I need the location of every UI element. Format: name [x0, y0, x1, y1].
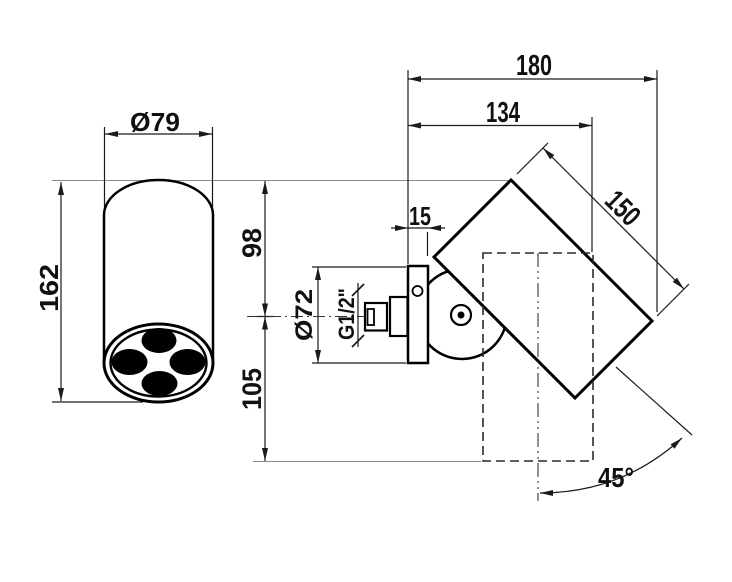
arrow: [58, 182, 64, 195]
dim-overall-depth: 180: [516, 50, 552, 82]
arrow: [579, 123, 592, 129]
arrow: [540, 490, 553, 496]
dim-plate-thickness: 15: [409, 201, 431, 231]
dim-head-diameter: Ø79: [130, 107, 180, 137]
arrow: [262, 317, 268, 330]
arrow: [262, 181, 268, 194]
dim-swivel-angle: 45°: [598, 462, 634, 493]
arrow: [105, 131, 118, 137]
arrow: [408, 123, 421, 129]
nozzle-left: [112, 349, 148, 375]
drawing-canvas: 180 134 15 150 Ø79 162 98 105 Ø72 G1/2" …: [0, 0, 732, 582]
dim-thread: G1/2": [334, 288, 359, 340]
dim-head-length: 150: [598, 185, 646, 233]
plate-screw-hole: [413, 286, 423, 296]
arrow: [262, 448, 268, 461]
pivot-center: [458, 312, 465, 319]
dim-below-axis: 105: [237, 368, 267, 410]
nozzle-bottom: [142, 371, 178, 396]
fitting-cap-recess: [368, 309, 375, 325]
arrow: [315, 350, 321, 363]
nozzle-top: [142, 328, 177, 353]
dim-above-axis: 98: [237, 228, 267, 258]
arrow: [315, 267, 321, 280]
dim-body-depth: 134: [486, 97, 520, 129]
arrow: [262, 304, 268, 317]
ext-stroke-150-bottom: [657, 284, 689, 316]
dim-plate-diameter: Ø72: [291, 289, 318, 341]
arrow: [395, 225, 408, 231]
head-side-view: [104, 180, 213, 402]
fitting-collar: [390, 297, 408, 336]
nozzle-right: [170, 349, 206, 375]
arrow: [408, 76, 421, 82]
technical-drawing: 180 134 15 150 Ø79 162 98 105 Ø72 G1/2" …: [0, 0, 732, 582]
axis-extension-line: [616, 367, 692, 435]
ext-stroke-150-top: [517, 143, 548, 174]
dim-head-height: 162: [34, 264, 64, 312]
arrow: [644, 76, 657, 82]
arrow: [58, 388, 64, 401]
wall-plate: [408, 266, 428, 363]
arrow: [199, 131, 212, 137]
